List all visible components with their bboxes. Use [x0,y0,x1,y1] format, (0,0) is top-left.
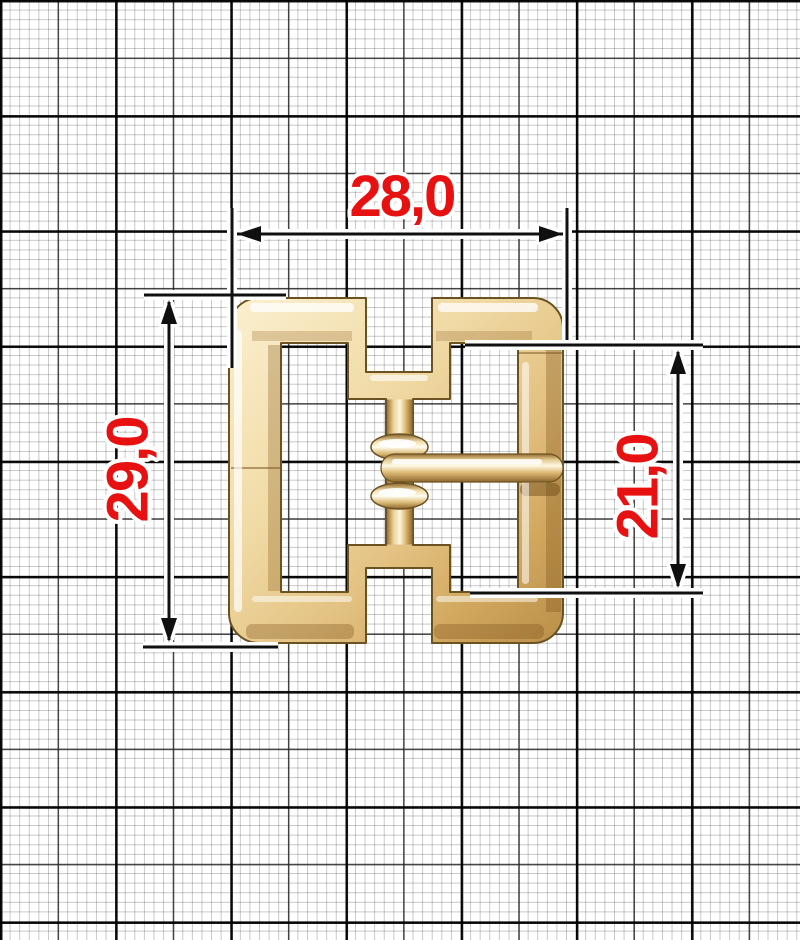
dimension-inner-height-label: 21,0 [605,435,670,540]
dimension-width-label: 28,0 [350,164,455,229]
graph-paper-canvas: 28,0 29,0 21,0 [0,0,800,940]
pin-collar-bottom [371,483,428,509]
dimension-height-label: 29,0 [95,418,160,523]
dimension-halos [143,208,703,647]
technical-drawing: 28,0 29,0 21,0 [0,0,800,940]
buckle-pin [381,454,563,482]
